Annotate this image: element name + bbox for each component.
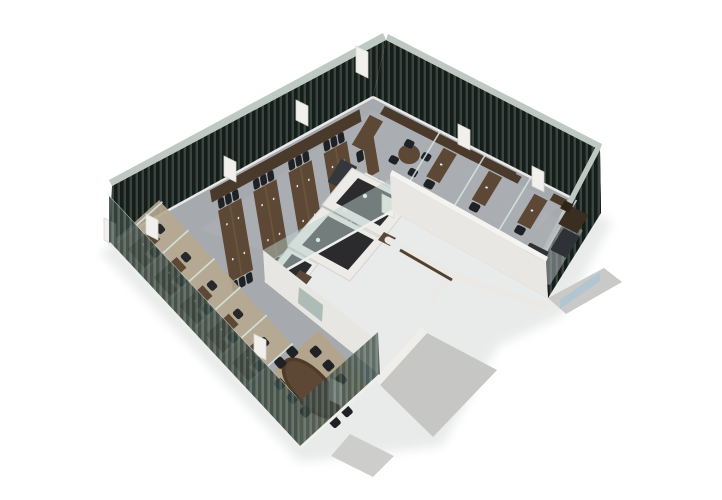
isometric-office-floorplan bbox=[0, 0, 722, 500]
floorplan-render-stage bbox=[0, 0, 722, 500]
structural-column bbox=[356, 46, 368, 78]
